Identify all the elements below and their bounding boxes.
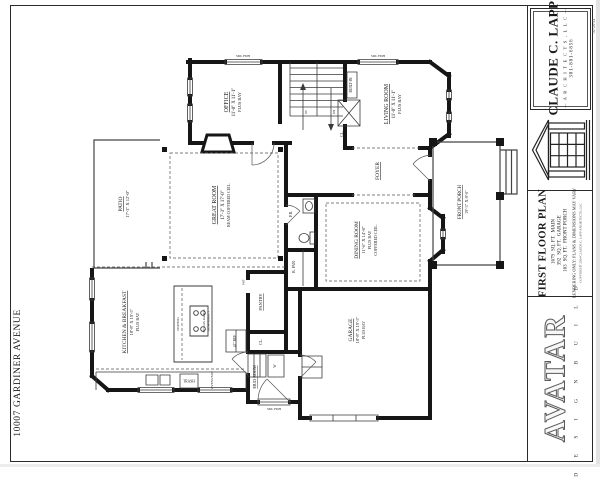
ceiling-dashes [92, 148, 420, 369]
seating-label: SEATING [176, 317, 180, 331]
patio-dims: 17'-3" X 12'-0" [125, 190, 130, 217]
porch-outline [433, 142, 517, 265]
office-name: OFFICE [224, 91, 230, 112]
window-tag-living: SDL FDH [371, 54, 385, 58]
pocket-door-label: PKT [242, 279, 246, 285]
dining-room-note: PLUS BAY [367, 230, 372, 249]
street-address: 10007 GARDINER AVENUE [13, 309, 23, 436]
staircase [290, 62, 343, 131]
area-main-label: MAIN [551, 219, 556, 232]
plan-title-section: FIRST FLOOR PLAN 1679 SQ. FT. MAIN 392 S… [527, 190, 592, 296]
stair-closet-label: CL. [340, 131, 344, 137]
area-main-value: 1679 [551, 254, 556, 267]
fridge-label: 42" REF [233, 335, 237, 348]
builder-section: AVATAR D E S I G N B U I L D [527, 296, 592, 460]
fireplace-icon [202, 135, 234, 152]
area-garage-label: GARAGE [557, 215, 562, 236]
logo-section [527, 112, 592, 188]
trash-label: TRASH [183, 380, 195, 384]
kitchen-note: PLUS BAY [135, 312, 140, 331]
living-room-name: LIVING ROOM [384, 83, 390, 124]
built-in-label: BUILT-IN [349, 77, 353, 92]
great-room-name: GREAT ROOM [212, 185, 218, 224]
area-row-porch: 163 SQ. FT. FRONT PORCH [563, 209, 568, 278]
area-garage-value: 392 [557, 258, 562, 271]
ovens-label: OVENS/MW [210, 370, 214, 389]
area-porch-unit: SQ. FT. [563, 246, 568, 262]
doorway-logo-icon [529, 115, 591, 185]
dining-room-dims: 11'-6" X 14'-8" [361, 226, 366, 253]
mud-room-label: MUD ROOM [252, 365, 257, 389]
window-tag-mudroom: SDL FDH [267, 407, 281, 411]
garage-note: PLUS BAY [362, 321, 366, 339]
toilet-icon [299, 232, 315, 244]
foyer-name: FOYER [375, 162, 381, 180]
great-room-note: BEAM COFFERED CEIL. [226, 183, 231, 227]
kitchen-counter [96, 330, 246, 390]
drawing-sheet: { "colors": {"ink": "#1a1a1a", "paper": … [0, 0, 600, 467]
sheet-title: FIRST FLOOR PLAN [537, 189, 548, 297]
office-note: PLUS BAY [237, 92, 242, 112]
stairs-up-label: UP [304, 110, 308, 114]
patio-name: PATIO [118, 196, 124, 211]
dining-room-note2: COFFERED CEIL. [373, 224, 378, 255]
area-table: 1679 SQ. FT. MAIN 392 SQ. FT. GARAGE 163… [551, 209, 568, 278]
window-tag-office: SDL FDH [236, 54, 250, 58]
firm-section: CLAUDE C. LAPP — A R C H I T E C T S , L… [527, 8, 592, 108]
garage-name: GARAGE [348, 318, 354, 342]
firm-phone: 301-881-6856 [569, 38, 574, 77]
area-row-garage: 392 SQ. FT. GARAGE [557, 209, 562, 278]
firm-name: CLAUDE C. LAPP [545, 1, 561, 116]
builder-name: AVATAR [540, 314, 570, 442]
powder-room-label: P.R. [288, 211, 293, 217]
front-porch-name: FRONT PORCH [458, 185, 463, 220]
garage-dims: 18'-8" X 19'-5" [355, 316, 360, 343]
stairs-down-label: DN [332, 109, 336, 114]
butlers-pantry-label: B. PAN [292, 261, 296, 273]
pantry-label: PANTRY [258, 293, 263, 311]
room-labels: OFFICE 11'-0" X 11'-1" PLUS BAY LIVING R… [118, 54, 469, 411]
chase-box [338, 100, 360, 126]
builder-tagline: D E S I G N B U I L D [573, 279, 579, 477]
area-porch-label: FRONT PORCH [563, 209, 568, 243]
copyright-text: COPYRIGHT 2024 CLAUDE C. LAPP ARCHITECTS… [578, 203, 582, 282]
mud-closet-label: CL. [259, 339, 263, 345]
area-porch-value: 163 [563, 264, 568, 277]
living-room-note: PLUS BAY [397, 94, 402, 114]
range-label: 36" GAS RANGE [202, 309, 206, 332]
dining-room-name: DINING ROOM [354, 221, 360, 259]
washer-label: W [273, 364, 277, 368]
range-label-2: DOWNDRAFT [207, 311, 211, 331]
kitchen-name: KITCHEN & BREAKFAST [122, 290, 128, 353]
kitchen-dims: 18'-8" X 19'-5" [129, 308, 134, 335]
front-porch-dims: 19'-3" X 8'-0" [464, 190, 469, 214]
area-garage-unit: SQ. FT. [557, 239, 562, 255]
area-main-unit: SQ. FT. [551, 235, 556, 251]
address-block: 10007 GARDINER AVENUE [9, 300, 27, 445]
area-row-main: 1679 SQ. FT. MAIN [551, 209, 556, 278]
floor-plan: OFFICE 11'-0" X 11'-1" PLUS BAY LIVING R… [0, 0, 600, 467]
firm-subtitle: — A R C H I T E C T S , L L C — [562, 8, 567, 109]
